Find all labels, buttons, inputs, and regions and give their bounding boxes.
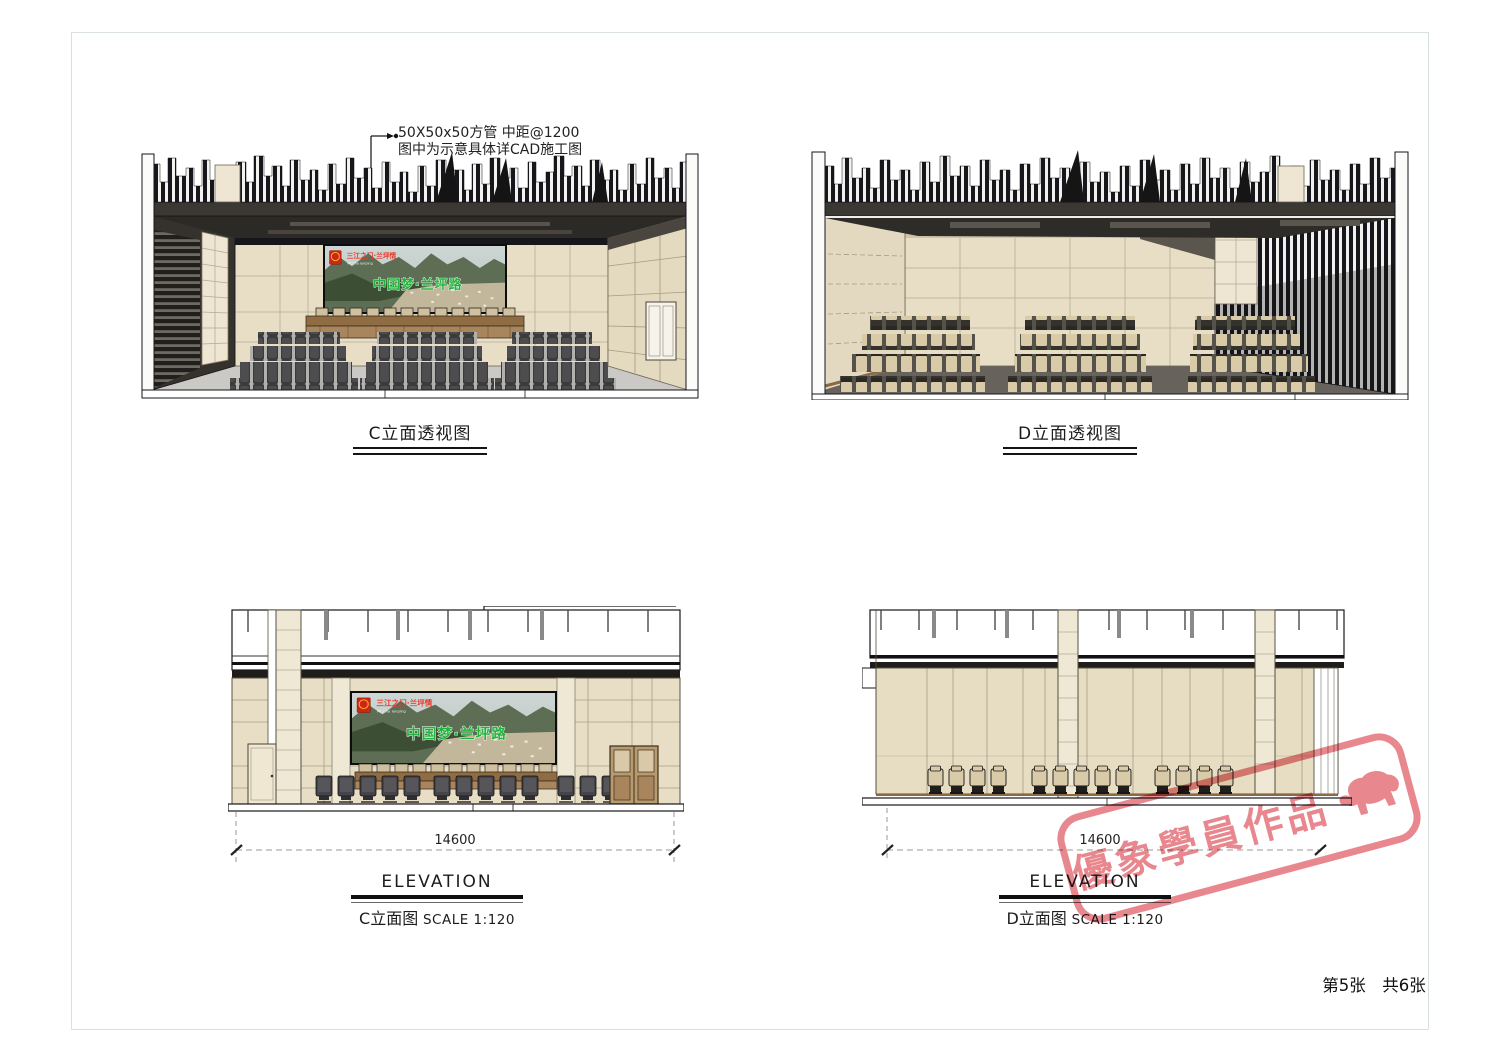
dimension-value: 14600 (434, 833, 475, 848)
right-pylon (1395, 152, 1408, 396)
base-plinth (228, 804, 684, 811)
label-underline (353, 447, 487, 455)
banner-top-subtitle: Mt.Cha lanping (347, 261, 373, 265)
annotation-line-1: 50X50x50方管 中距@1200 (398, 125, 582, 142)
left-wall (152, 214, 235, 390)
d-perspective-label: D立面透视图 (975, 419, 1165, 455)
label-underline (351, 895, 523, 903)
right-door (646, 302, 676, 360)
c-elevation-drawing: 三江之门·兰坪情 Mt.Cha lanping 中国梦·兰坪路 (228, 606, 684, 870)
banner-main-slogan: 中国梦·兰坪路 (406, 725, 507, 743)
left-pylon (812, 152, 825, 396)
right-wall (608, 214, 688, 390)
c-perspective-label: C立面透视图 (325, 419, 515, 455)
banner-top-title: 三江之门·兰坪情 (376, 698, 433, 708)
banner-main-slogan: 中国梦·兰坪路 (373, 276, 462, 293)
drawing-sheet: 50X50x50方管 中距@1200 图中为示意具体详CAD施工图 (0, 0, 1500, 1061)
ceiling-fins (825, 150, 1395, 202)
wall-protrusion (862, 668, 876, 688)
page-number: 第5张 共6张 (1300, 972, 1448, 996)
audience-seats (840, 316, 1315, 392)
ceiling-fins (152, 152, 688, 202)
right-double-door (610, 746, 658, 804)
left-door (248, 744, 276, 804)
d-perspective-view (810, 144, 1410, 400)
label-underline (1003, 447, 1137, 455)
led-screen: 三江之门·兰坪情 Mt.Cha lanping 中国梦·兰坪路 (352, 693, 555, 763)
base-plinth (142, 390, 698, 398)
audience-seats (230, 332, 616, 390)
led-screen: 三江之门·兰坪情 Mt.Cha lanping 中国梦·兰坪路 (325, 246, 505, 312)
c-elevation-label: ELEVATION C立面图 SCALE 1:120 (327, 872, 547, 929)
right-pylon (686, 154, 698, 394)
elephant-icon (1330, 755, 1413, 829)
base-plinth (812, 394, 1408, 400)
ceiling (825, 202, 1395, 238)
ceiling (152, 202, 688, 238)
c-perspective-view: 三江之门·兰坪情 Mt.Cha lanping 中国梦·兰坪路 (140, 144, 700, 400)
banner-top-title: 三江之门·兰坪情 (347, 251, 397, 260)
dimension-line: 14600 (231, 812, 680, 862)
banner-top-subtitle: Mt.Cha lanping (377, 710, 407, 714)
left-pylon (142, 154, 154, 394)
stone-column (276, 610, 301, 804)
